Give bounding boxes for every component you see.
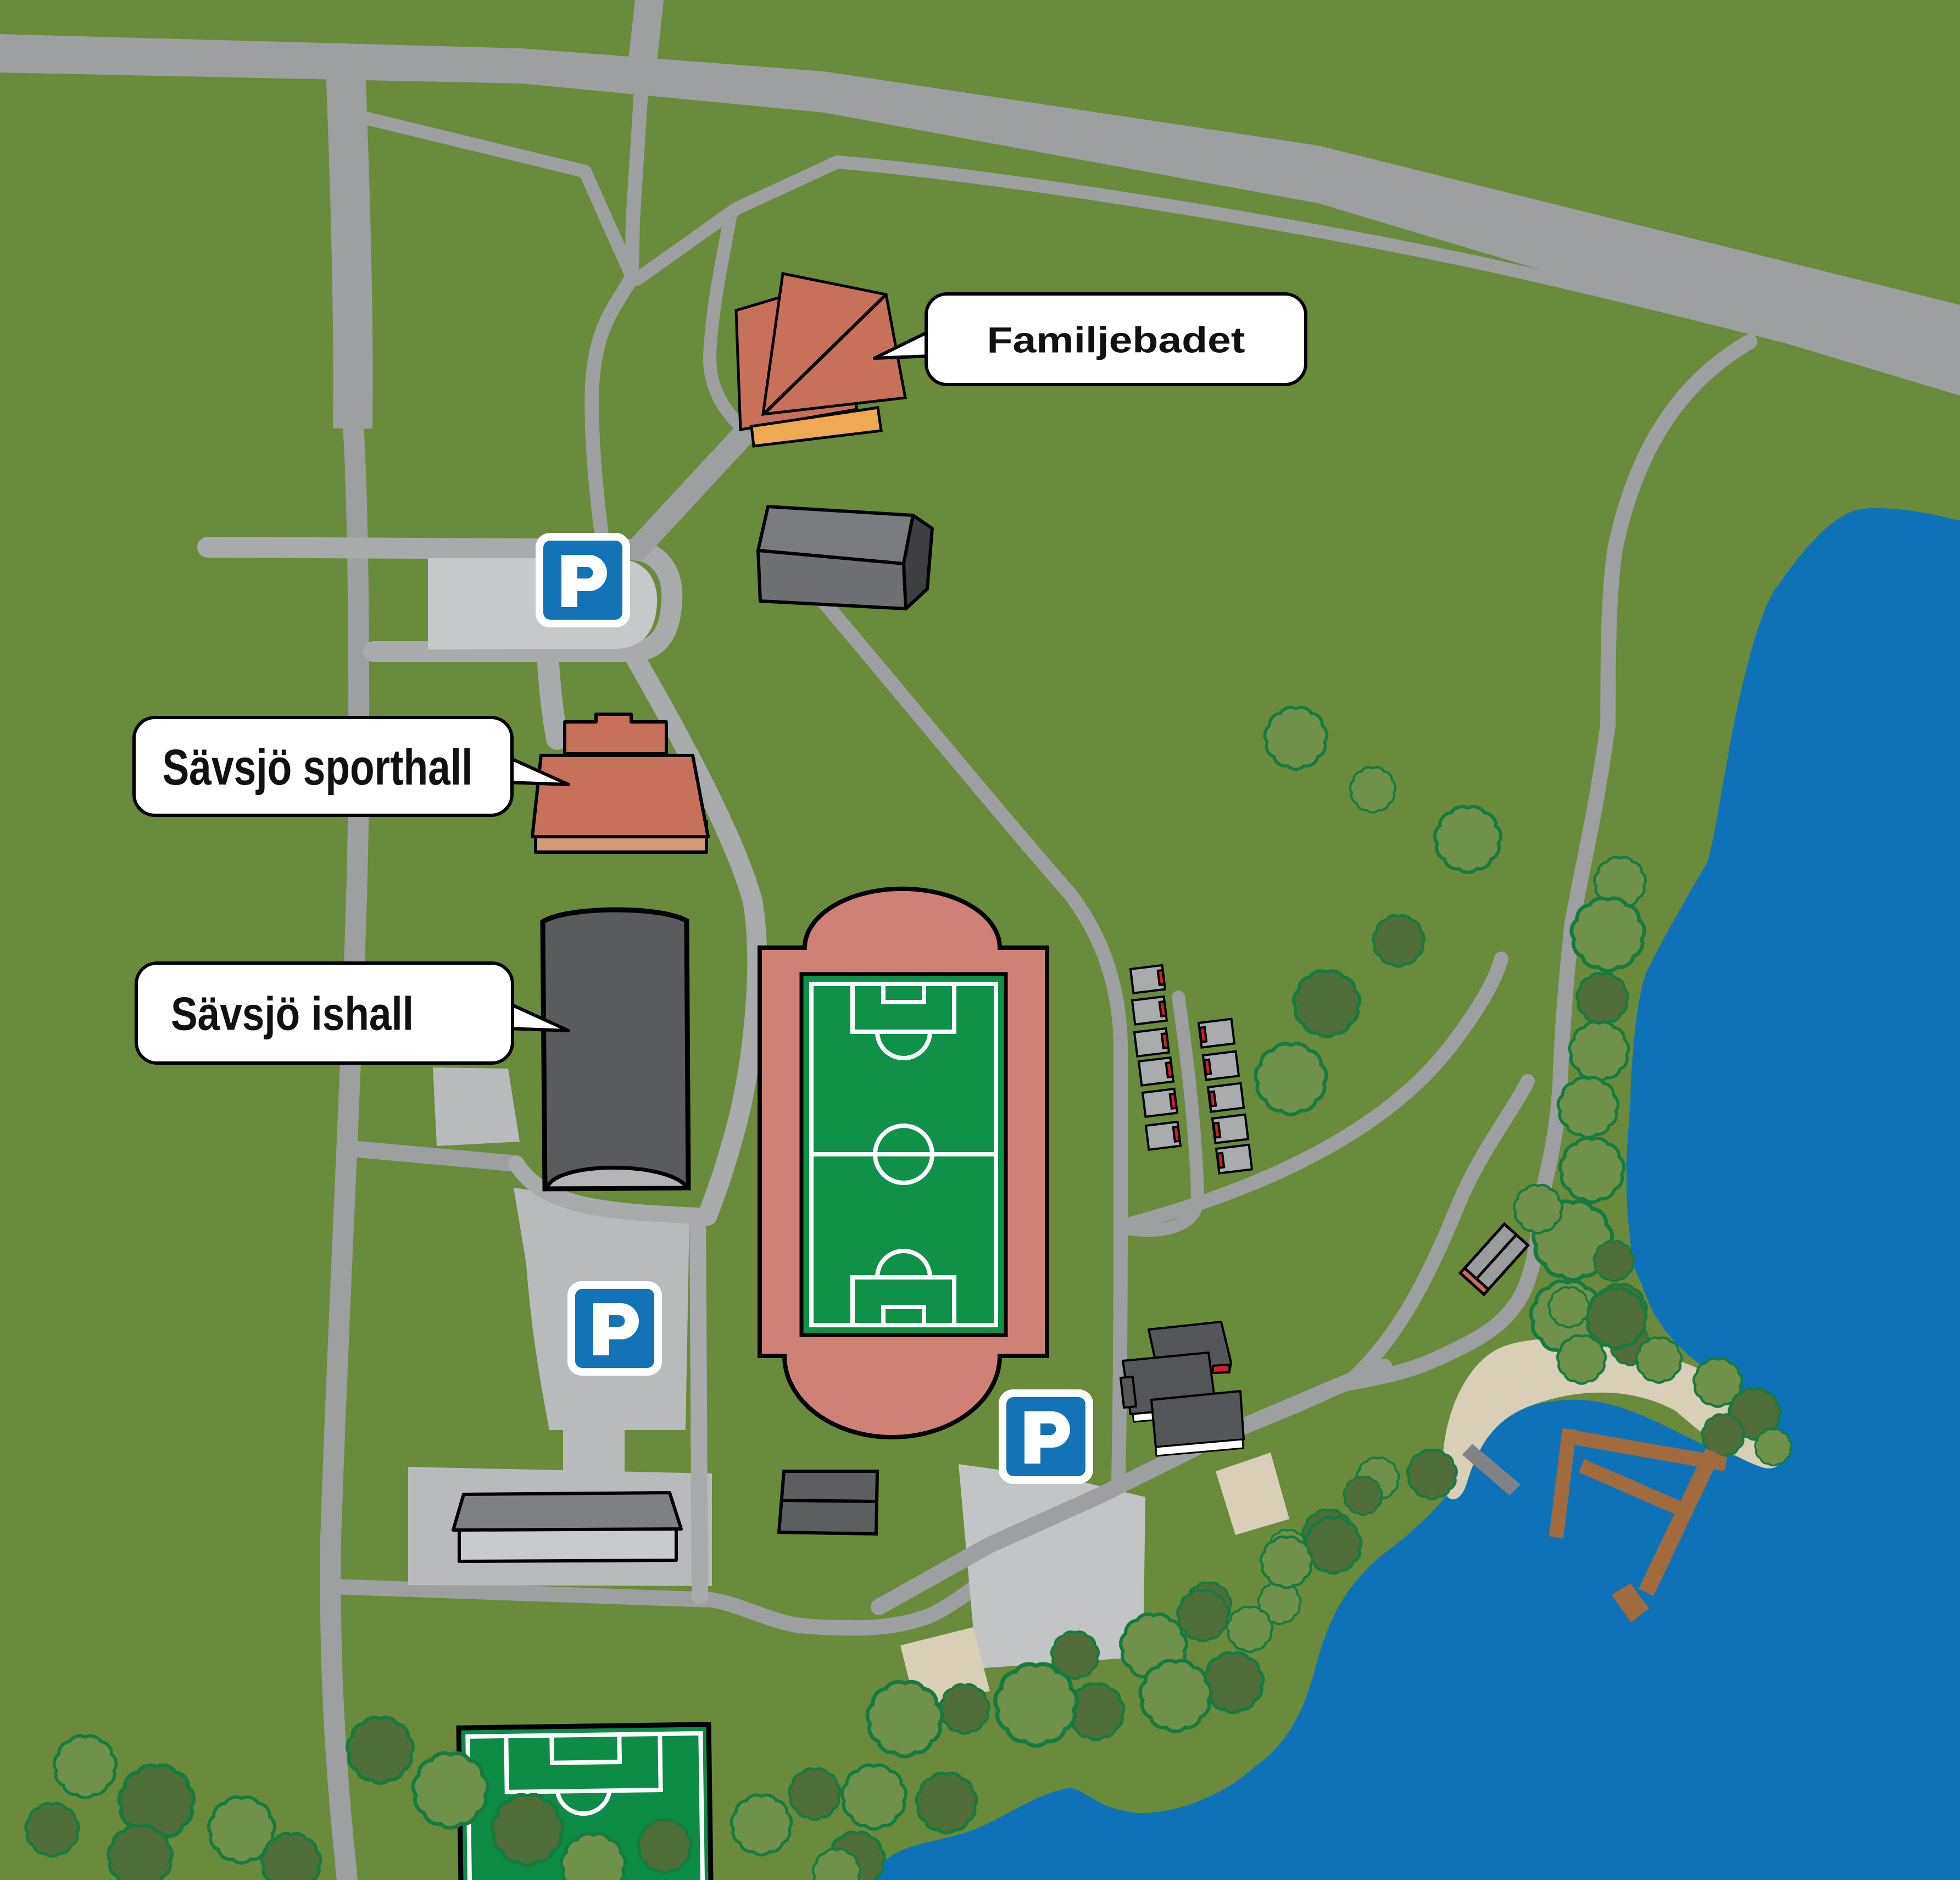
svg-text:Sävsjö sporthall: Sävsjö sporthall: [163, 739, 473, 796]
svg-text:Familjebadet: Familjebadet: [987, 319, 1245, 360]
svg-text:Sävsjö ishall: Sävsjö ishall: [171, 988, 414, 1041]
